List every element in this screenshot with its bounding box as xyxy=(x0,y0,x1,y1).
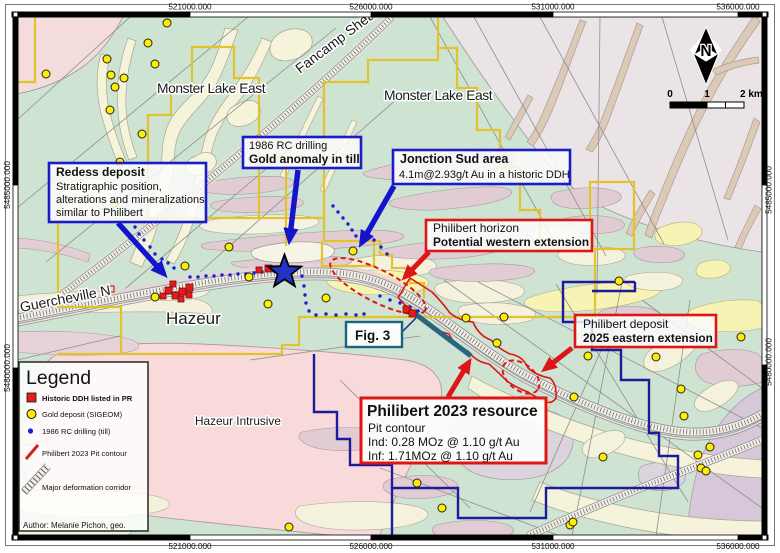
svg-text:531000.000: 531000.000 xyxy=(531,542,575,551)
svg-text:Hazeur: Hazeur xyxy=(166,309,221,328)
svg-text:536000.000: 536000.000 xyxy=(716,3,760,12)
svg-text:1: 1 xyxy=(704,89,710,100)
svg-text:Major deformation corridor: Major deformation corridor xyxy=(42,483,132,492)
svg-text:2 km: 2 km xyxy=(740,89,763,100)
svg-text:536000.000: 536000.000 xyxy=(716,542,760,551)
svg-text:4.1m@2.93g/t Au in a historic: 4.1m@2.93g/t Au in a historic DDH xyxy=(399,169,570,181)
svg-text:similar to Philibert: similar to Philibert xyxy=(56,207,143,219)
svg-text:Gold anomaly in till: Gold anomaly in till xyxy=(249,152,360,166)
svg-text:531000.000: 531000.000 xyxy=(531,3,575,12)
svg-text:1986 RC drilling (till): 1986 RC drilling (till) xyxy=(42,427,111,436)
svg-text:Fig. 3: Fig. 3 xyxy=(355,328,391,343)
svg-text:5485000.000: 5485000.000 xyxy=(765,166,774,214)
svg-text:Philibert 2023 Pit contour: Philibert 2023 Pit contour xyxy=(42,449,127,458)
svg-text:521000.000: 521000.000 xyxy=(168,3,212,12)
svg-text:Jonction Sud area: Jonction Sud area xyxy=(400,152,509,166)
svg-text:Gold deposit (SIGEOM): Gold deposit (SIGEOM) xyxy=(42,410,123,419)
svg-text:Philibert deposit: Philibert deposit xyxy=(583,317,669,331)
svg-text:521000.000: 521000.000 xyxy=(168,542,212,551)
svg-text:alterations and mineralization: alterations and mineralizations xyxy=(56,194,205,206)
svg-text:Monster Lake East: Monster Lake East xyxy=(157,81,266,96)
svg-text:Philibert 2023 resource: Philibert 2023 resource xyxy=(367,403,538,420)
svg-text:Historic DDH listed in PR: Historic DDH listed in PR xyxy=(42,394,133,403)
svg-text:Author: Melanie Pichon, geo.: Author: Melanie Pichon, geo. xyxy=(23,521,126,530)
svg-text:Philibert horizon: Philibert horizon xyxy=(433,221,519,235)
svg-text:2025 eastern extension: 2025 eastern extension xyxy=(583,331,713,345)
svg-text:Redess deposit: Redess deposit xyxy=(56,165,145,179)
svg-text:Ind: 0.28 MOz @ 1.10 g/t Au: Ind: 0.28 MOz @ 1.10 g/t Au xyxy=(368,435,520,449)
svg-text:526000.000: 526000.000 xyxy=(349,3,393,12)
svg-text:5480000.000: 5480000.000 xyxy=(3,344,12,392)
svg-text:N: N xyxy=(700,43,711,60)
svg-text:Legend: Legend xyxy=(26,367,91,389)
svg-text:Hazeur Intrusive: Hazeur Intrusive xyxy=(195,414,281,428)
svg-text:1986 RC drilling: 1986 RC drilling xyxy=(249,140,327,152)
svg-text:0: 0 xyxy=(667,89,673,100)
svg-text:5485000.000: 5485000.000 xyxy=(3,161,12,209)
svg-text:Pit contour: Pit contour xyxy=(368,421,425,435)
svg-text:Inf: 1.71MOz @ 1.10 g/t Au: Inf: 1.71MOz @ 1.10 g/t Au xyxy=(368,449,513,463)
svg-text:Potential western extension: Potential western extension xyxy=(433,235,589,249)
svg-text:526000.000: 526000.000 xyxy=(349,542,393,551)
svg-text:5480000.000: 5480000.000 xyxy=(765,338,774,386)
svg-text:Stratigraphic position,: Stratigraphic position, xyxy=(56,181,162,193)
svg-text:Monster Lake East: Monster Lake East xyxy=(384,88,493,103)
